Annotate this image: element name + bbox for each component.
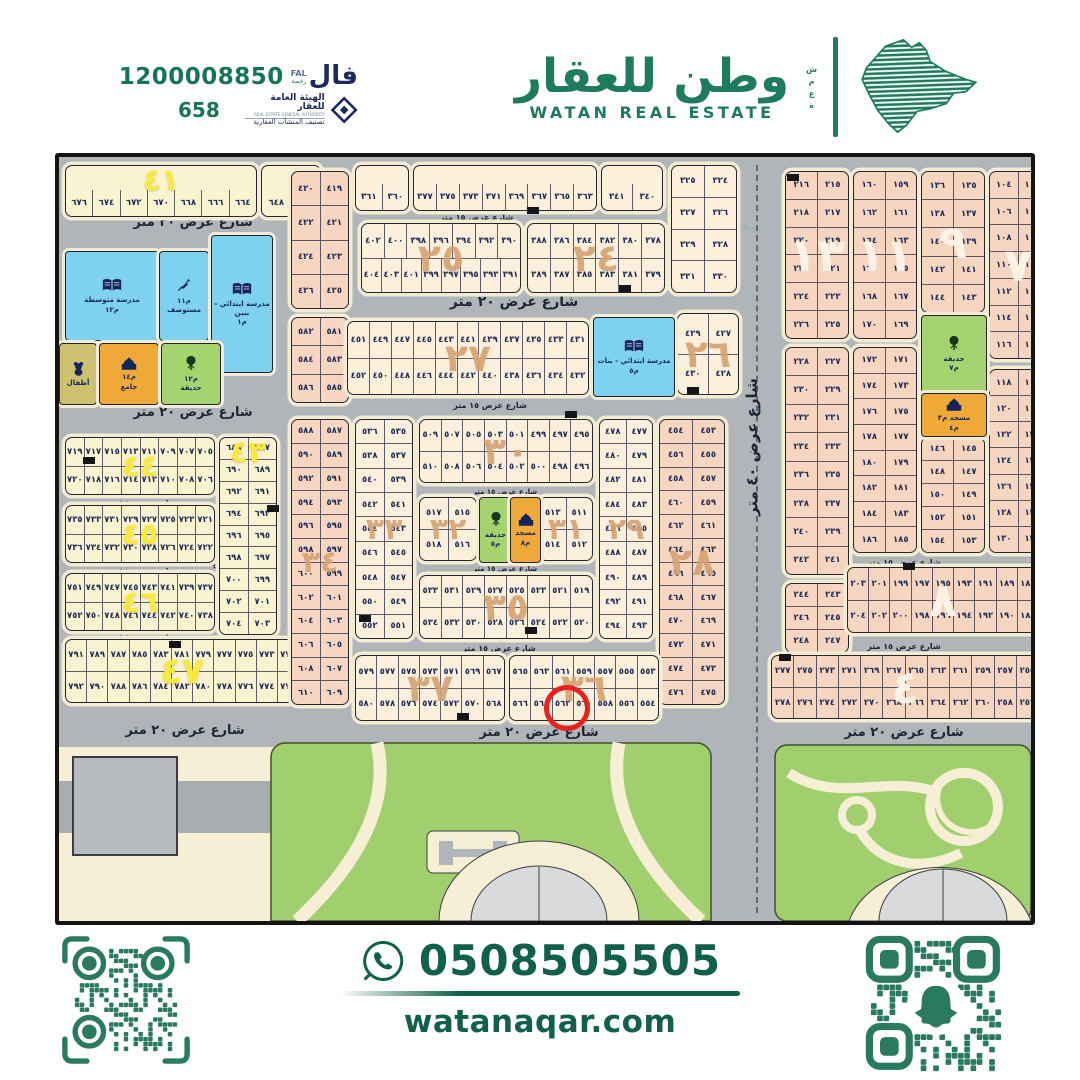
sold-marker — [565, 411, 577, 418]
plot-586: ٥٨٦ — [292, 375, 320, 402]
brand-side-letter: ش — [806, 65, 817, 74]
plot-477: ٤٧٧ — [626, 420, 653, 443]
plot-530: ٥٣٠ — [462, 608, 484, 639]
plot-163: ١٦٣ — [885, 228, 917, 255]
plot-378: ٣٧٨ — [641, 224, 664, 258]
fal-arabic-wordmark: فال — [309, 65, 358, 88]
plot-114: ١١٤ — [990, 306, 1018, 332]
mosque-icon — [120, 357, 138, 372]
plot-492: ٤٩٢ — [600, 590, 626, 613]
block-43: ٦٨٨٦٨٧٦٩٠٦٨٩٦٩٢٦٩١٦٩٤٦٩٣٦٩٦٦٩٥٦٩٨٦٩٧٧٠٠٦… — [219, 437, 277, 635]
fal-license-number: 1200008850 — [119, 64, 284, 90]
plot-173: ١٧٣ — [885, 374, 917, 399]
plot-528: ٥٢٨ — [484, 608, 506, 639]
plot-720: ٧٢٠ — [66, 467, 84, 495]
street-label: شارع عرض ١٥ متر — [355, 398, 625, 412]
plot-122: ١٢٢ — [990, 422, 1018, 447]
plot-699: ٦٩٩ — [248, 569, 277, 590]
street-label: شارع عرض ٢٠ متر — [771, 725, 1035, 739]
plot-565: ٥٦٥ — [510, 656, 530, 688]
plot-488: ٤٨٨ — [600, 542, 626, 565]
plot-154: ١٥٤ — [922, 530, 953, 552]
plot-221: ٢٢١ — [817, 255, 849, 282]
plot-476: ٤٧٦ — [660, 681, 692, 704]
plot-542: ٥٤٢ — [356, 493, 384, 516]
plot-227: ٢٢٧ — [817, 348, 849, 375]
plot-120: ١٢٠ — [990, 396, 1018, 421]
plot-578: ٥٧٨ — [376, 689, 397, 721]
plot-497: ٤٩٧ — [549, 420, 571, 451]
plot-500: ٥٠٠ — [527, 452, 549, 483]
plot-471: ٤٧١ — [692, 634, 725, 657]
plot-534: ٥٣٤ — [420, 608, 441, 639]
street-label: شارع عرض ١٥ متر — [419, 562, 591, 576]
plot-232: ٢٣٢ — [786, 405, 817, 432]
plot-170: ١٧٠ — [854, 311, 885, 338]
plot-589: ٥٨٩ — [320, 444, 349, 467]
plot-401: ٤٠١ — [401, 259, 421, 293]
school: مدرسة متوسطةم١٣ — [65, 251, 159, 341]
website-url[interactable]: watanaqar.com — [330, 1004, 750, 1040]
plot-592: ٥٩٢ — [292, 468, 320, 491]
plot-563: ٥٦٣ — [530, 656, 551, 688]
plot-523: ٥٢٣ — [527, 576, 549, 607]
plot-327: ٣٢٧ — [672, 198, 704, 229]
tree-icon — [184, 355, 198, 373]
plot-107: ١٠٧ — [1018, 225, 1036, 251]
plot-393: ٣٩٣ — [480, 259, 500, 293]
plot-369: ٣٦٩ — [505, 184, 528, 210]
plot-700: ٧٠٠ — [220, 569, 248, 590]
plot-237: ٢٣٧ — [817, 490, 849, 517]
plot-598: ٥٩٨ — [292, 539, 320, 562]
plot-495: ٤٩٥ — [570, 420, 592, 451]
sold-marker — [903, 563, 915, 570]
plot-271: ٢٧١ — [838, 656, 860, 687]
block: ٣٦١٣٦٠ — [355, 165, 409, 211]
plot-501: ٥٠١ — [506, 420, 528, 451]
block-29: ٤٧٨٤٧٧٤٨٠٤٧٩٤٨٢٤٨١٤٨٤٤٨٣٤٨٦٤٨٥٤٨٨٤٨٧٤٩٠٤… — [599, 419, 653, 639]
plot-783: ٧٨٣ — [150, 640, 171, 671]
sold-marker — [619, 285, 631, 292]
plot-258: ٢٥٨ — [994, 688, 1016, 719]
plot-382: ٣٨٢ — [595, 224, 618, 258]
plot-697: ٦٩٧ — [248, 547, 277, 568]
plot-566: ٥٦٦ — [510, 689, 530, 721]
facility-label: م٥ — [629, 367, 638, 375]
whatsapp-icon — [359, 937, 407, 985]
plot-556: ٥٥٦ — [615, 689, 636, 721]
plot-109: ١٠٩ — [1018, 252, 1036, 278]
street-label: شارع عرض ١٥ متر — [359, 641, 639, 655]
highlighted-plot-562[interactable] — [544, 685, 590, 731]
plot-129: ١٢٩ — [1018, 527, 1036, 552]
block-11: ١٦٠١٥٩١٦٢١٦١١٦٤١٦٣١٦٦١٦٥١٦٨١٦٧١٧٠١٦٩١١ — [853, 171, 917, 339]
plot-512: ٥١٢ — [566, 530, 593, 561]
bear-icon — [72, 361, 85, 378]
plot-147: ١٤٧ — [953, 461, 985, 483]
rega-name-ar: الهيئة العامة للعقار — [245, 94, 325, 113]
plot-433: ٤٣٣ — [544, 322, 566, 358]
plot-482: ٤٨٢ — [600, 469, 626, 492]
plot-597: ٥٩٧ — [320, 539, 349, 562]
plot-444: ٤٤٤ — [435, 359, 457, 395]
qr-code-snapchat[interactable] — [852, 922, 1020, 1080]
facility-label: مدرسة ابتدائي - بنين — [213, 300, 271, 317]
plot-714: ٧١٤ — [121, 467, 140, 495]
plot-236: ٢٣٦ — [786, 462, 817, 489]
plot-554: ٥٥٤ — [637, 689, 658, 721]
plot-558: ٥٥٨ — [594, 689, 615, 721]
plot-568: ٥٦٨ — [483, 689, 504, 721]
plot-160: ١٦٠ — [854, 172, 885, 199]
plot-235: ٢٣٥ — [817, 462, 849, 489]
plot-371: ٣٧١ — [482, 184, 505, 210]
plot-190: ١٩٠ — [996, 601, 1017, 633]
plot-437: ٤٣٧ — [500, 322, 522, 358]
plot-544: ٥٤٤ — [356, 517, 384, 540]
plot-779: ٧٧٩ — [192, 640, 213, 671]
plot-474: ٤٧٤ — [660, 658, 692, 681]
plot-536: ٥٣٦ — [356, 420, 384, 443]
plot-375: ٣٧٥ — [436, 184, 459, 210]
tree-icon — [489, 511, 503, 529]
plot-215: ٢١٥ — [817, 172, 849, 199]
plot-373: ٣٧٣ — [459, 184, 482, 210]
book-icon — [231, 282, 253, 299]
plot-569: ٥٦٩ — [461, 656, 482, 688]
plot-590: ٥٩٠ — [292, 444, 320, 467]
plot-674: ٦٧٤ — [92, 190, 119, 216]
plot-187: ١٨٧ — [1017, 568, 1035, 600]
plot-748: ٧٤٨ — [102, 603, 121, 631]
plot-571: ٥٧١ — [440, 656, 461, 688]
plot-746: ٧٤٦ — [121, 603, 140, 631]
plot-242: ٢٤٢ — [786, 547, 817, 574]
plot-451: ٤٥١ — [348, 322, 369, 358]
plot-594: ٥٩٤ — [292, 491, 320, 514]
plot-453: ٤٥٣ — [692, 420, 725, 443]
plot-713: ٧١٣ — [121, 438, 140, 466]
block: ٤٢٠٤١٩٤٢٢٤٢١٤٢٤٤٢٣٤٢٦٤٢٥ — [291, 171, 349, 309]
plot-185: ١٨٥ — [885, 527, 917, 552]
plot-790: ٧٩٠ — [86, 672, 107, 703]
plot-533: ٥٣٣ — [420, 576, 441, 607]
plot-385: ٣٨٥ — [573, 259, 596, 293]
plot-113: ١١٣ — [1018, 306, 1036, 332]
plot-466: ٤٦٦ — [660, 563, 692, 586]
street-label: شارع عرض ٢٠ متر — [349, 295, 679, 309]
plot-502: ٥٠٢ — [506, 452, 528, 483]
plot-220: ٢٢٠ — [786, 228, 817, 255]
plot-582: ٥٨٢ — [292, 318, 320, 345]
plot-733: ٧٣٣ — [84, 506, 103, 534]
sold-marker — [525, 627, 537, 634]
plot-734: ٧٣٤ — [84, 535, 103, 563]
plot-593: ٥٩٣ — [320, 491, 349, 514]
plot-423: ٤٢٣ — [320, 241, 349, 274]
plot-108: ١٠٨ — [990, 225, 1018, 251]
plot-788: ٧٨٨ — [107, 672, 128, 703]
block-41: ٦٧٦٦٧٤٦٧٢٦٧٠٦٦٨٦٦٦٦٦٤٤١ — [65, 165, 257, 217]
plot-721: ٧٢١ — [195, 506, 214, 534]
plot-241: ٢٤١ — [817, 547, 849, 574]
plot-648: ٦٤٨ — [262, 190, 291, 216]
plot-546: ٥٤٦ — [356, 542, 384, 565]
plot-550: ٥٥٠ — [356, 590, 384, 613]
plot-718: ٧١٨ — [84, 467, 103, 495]
brand-side-letter: ة — [809, 101, 814, 110]
facility-label: مستوصف — [167, 306, 201, 314]
plot-773: ٧٧٣ — [256, 640, 277, 671]
plot-520: ٥٢٠ — [570, 608, 592, 639]
plot-380: ٣٨٠ — [618, 224, 641, 258]
plot-341: ٣٤١ — [602, 184, 632, 210]
tree-icon — [947, 335, 961, 353]
plot-266: ٢٦٦ — [905, 688, 927, 719]
plot-517: ٥١٧ — [420, 498, 448, 529]
plot-202: ٢٠٢ — [868, 601, 889, 633]
plot-398: ٣٩٨ — [406, 224, 429, 258]
plot-184: ١٨٤ — [854, 502, 885, 527]
plot-487: ٤٨٧ — [626, 542, 653, 565]
plot-583: ٥٨٣ — [320, 346, 349, 373]
plot-539: ٥٣٩ — [384, 469, 413, 492]
plot-695: ٦٩٥ — [248, 526, 277, 547]
plot-496: ٤٩٦ — [570, 452, 592, 483]
plot-464: ٤٦٤ — [660, 539, 692, 562]
plot-128: ١٢٨ — [990, 501, 1018, 526]
facility-label: م٨ — [521, 539, 530, 547]
plot-225: ٢٢٥ — [817, 311, 849, 338]
plot-601: ٦٠١ — [320, 586, 349, 609]
block-25: ٤٠٢٤٠٠٣٩٨٣٩٦٣٩٤٣٩٢٣٩٠٤٠٤٤٠٣٤٠١٣٩٩٣٩٧٣٩٥٣… — [361, 223, 521, 293]
plot-729: ٧٢٩ — [121, 506, 140, 534]
plot-193: ١٩٣ — [953, 568, 974, 600]
plot-701: ٧٠١ — [248, 591, 277, 612]
plot-747: ٧٤٧ — [102, 574, 121, 602]
plot-226: ٢٢٦ — [786, 311, 817, 338]
plot-591: ٥٩١ — [320, 468, 349, 491]
saudi-map-icon — [845, 25, 999, 148]
plot-691: ٦٩١ — [248, 482, 277, 503]
plot-440: ٤٤٠ — [478, 359, 500, 395]
plot-112: ١١٢ — [990, 279, 1018, 305]
park: حديقةم٧ — [921, 315, 987, 393]
sold-marker — [687, 387, 699, 394]
mosque-icon — [517, 513, 535, 528]
plot-456: ٤٥٦ — [660, 444, 692, 467]
qr-code-website[interactable] — [60, 934, 192, 1066]
plot-180: ١٨٠ — [854, 451, 885, 476]
plot-169: ١٦٩ — [885, 311, 917, 338]
plot-111: ١١١ — [1018, 279, 1036, 305]
sold-marker — [787, 174, 799, 181]
plot-365: ٣٦٥ — [550, 184, 573, 210]
plot-257: ٢٥٧ — [994, 656, 1016, 687]
plot-138: ١٣٨ — [922, 200, 953, 227]
plot-143: ١٤٣ — [953, 285, 985, 312]
plot-473: ٤٧٣ — [692, 658, 725, 681]
kindergarten: أطفال — [59, 343, 97, 405]
plot-189: ١٨٩ — [996, 568, 1017, 600]
plot-483: ٤٨٣ — [626, 493, 653, 516]
plot-449: ٤٤٩ — [369, 322, 391, 358]
plot-153: ١٥٣ — [953, 530, 985, 552]
plot-110: ١١٠ — [990, 252, 1018, 278]
plot-265: ٢٦٥ — [905, 656, 927, 687]
sold-marker — [83, 457, 95, 464]
plot-574: ٥٧٤ — [419, 689, 440, 721]
plot-239: ٢٣٩ — [817, 518, 849, 545]
plot-689: ٦٨٩ — [248, 460, 277, 481]
block-46: ٧٥١٧٤٩٧٤٧٧٤٥٧٤٣٧٤١٧٣٩٧٣٧٧٥٢٧٥٠٧٤٨٧٤٦٧٤٤٧… — [65, 573, 215, 631]
plot-186: ١٨٦ — [854, 527, 885, 552]
facility-label: مدرسة متوسطة — [84, 296, 140, 304]
plot-694: ٦٩٤ — [220, 504, 248, 525]
street-label: شارع عرض ٢٠ متر — [359, 725, 719, 739]
plot-730: ٧٣٠ — [121, 535, 140, 563]
plot-522: ٥٢٢ — [549, 608, 571, 639]
mosque-icon — [945, 398, 963, 413]
plot-441: ٤٤١ — [457, 322, 479, 358]
plot-175: ١٧٥ — [885, 399, 917, 424]
mosque: م١٤جامع — [99, 343, 159, 405]
plot-469: ٤٦٩ — [692, 610, 725, 633]
plot-162: ١٦٢ — [854, 200, 885, 227]
plot-744: ٧٤٤ — [140, 603, 159, 631]
plot-117: ١١٧ — [1018, 370, 1036, 395]
block-45: ٧٣٥٧٣٣٧٣١٧٢٩٧٢٧٧٢٥٧٢٣٧٢١٧٣٦٧٣٤٧٣٢٧٣٠٧٢٨٧… — [65, 505, 215, 563]
facility-label: مسجد م٣ — [938, 414, 970, 422]
plot-599: ٥٩٩ — [320, 563, 349, 586]
plot-775: ٧٧٥ — [235, 640, 256, 671]
facility-label: م٧ — [949, 364, 958, 372]
plot-394: ٣٩٤ — [452, 224, 475, 258]
plot-166: ١٦٦ — [854, 255, 885, 282]
plot-429: ٤٢٩ — [678, 314, 708, 354]
plot-188: ١٨٨ — [1017, 601, 1035, 633]
plot-690: ٦٩٠ — [220, 460, 248, 481]
plot-722: ٧٢٢ — [195, 535, 214, 563]
plot-698: ٦٩٨ — [220, 547, 248, 568]
plot-478: ٤٧٨ — [600, 420, 626, 443]
plot-238: ٢٣٨ — [786, 490, 817, 517]
contact-phone[interactable]: 0508505505 — [419, 936, 721, 985]
book-icon — [623, 339, 645, 356]
facility-label: أطفال — [67, 379, 90, 387]
plot-443: ٤٤٣ — [435, 322, 457, 358]
plot-576: ٥٧٦ — [398, 689, 419, 721]
plot-115: ١١٥ — [1018, 332, 1036, 358]
plot-121: ١٢١ — [1018, 422, 1036, 447]
plot-610: ٦١٠ — [292, 681, 320, 704]
plot-274: ٢٧٤ — [816, 688, 838, 719]
plot-529: ٥٢٩ — [462, 576, 484, 607]
plot-387: ٣٨٧ — [550, 259, 573, 293]
plot-543: ٥٤٣ — [384, 517, 413, 540]
plot-776: ٧٧٦ — [235, 672, 256, 703]
plot-183: ١٨٣ — [885, 502, 917, 527]
plot-749: ٧٤٩ — [84, 574, 103, 602]
plot-243: ٢٤٣ — [817, 584, 849, 606]
plot-171: ١٧١ — [885, 348, 917, 373]
plot-676: ٦٧٦ — [66, 190, 92, 216]
plot-422: ٤٢٢ — [292, 206, 320, 239]
facility-label: مسجد — [515, 529, 536, 537]
plot-513: ٥١٣ — [540, 498, 566, 529]
plot-555: ٥٥٥ — [615, 656, 636, 688]
block: ٣٧٧٣٧٥٣٧٣٣٧١٣٦٩٣٦٧٣٦٥٣٦٣ — [413, 165, 597, 211]
plot-703: ٧٠٣ — [248, 613, 277, 634]
plot-465: ٤٦٥ — [692, 563, 725, 586]
plot-587: ٥٨٧ — [320, 420, 349, 443]
plot-547: ٥٤٧ — [384, 566, 413, 589]
plot-735: ٧٣٥ — [66, 506, 84, 534]
plot-531: ٥٣١ — [441, 576, 463, 607]
plot-329: ٣٢٩ — [672, 230, 704, 261]
plot-738: ٧٣٨ — [195, 603, 214, 631]
plot-434: ٤٣٤ — [544, 359, 566, 395]
block-27: ٤٥١٤٤٩٤٤٧٤٤٥٤٤٣٤٤١٤٣٩٤٣٧٤٣٥٤٣٣٤٣١٤٥٢٤٥٠٤… — [347, 321, 589, 395]
plot-139: ١٣٩ — [953, 228, 985, 255]
plot-462: ٤٦٢ — [660, 515, 692, 538]
plot-168: ١٦٨ — [854, 283, 885, 310]
plot-119: ١١٩ — [1018, 396, 1036, 421]
park: حديقةم٥ — [479, 497, 512, 563]
fal-tag: رخصة — [291, 78, 307, 85]
plot-146: ١٤٦ — [922, 438, 953, 460]
plot-199: ١٩٩ — [889, 568, 910, 600]
plot-585: ٥٨٥ — [320, 375, 349, 402]
plot-709: ٧٠٩ — [158, 438, 177, 466]
facility-label: م١٢ — [184, 375, 198, 383]
plot-540: ٥٤٠ — [356, 469, 384, 492]
plot-377: ٣٧٧ — [414, 184, 436, 210]
rega-diamond-icon — [330, 95, 358, 125]
plot-262: ٢٦٢ — [949, 688, 971, 719]
plot-708: ٧٠٨ — [177, 467, 196, 495]
plot-712: ٧١٢ — [140, 467, 159, 495]
plot-480: ٤٨٠ — [600, 444, 626, 467]
plot-784: ٧٨٤ — [150, 672, 171, 703]
plot-446: ٤٤٦ — [413, 359, 435, 395]
plot-231: ٢٣١ — [817, 405, 849, 432]
plot-751: ٧٥١ — [66, 574, 84, 602]
block-26: ٤٢٩٤٢٧٤٣٠٤٢٨٢٦ — [677, 313, 739, 395]
plot-384: ٣٨٤ — [573, 224, 596, 258]
plot-106: ١٠٦ — [990, 199, 1018, 225]
plot-605: ٦٠٥ — [320, 634, 349, 657]
plot-260: ٢٦٠ — [971, 688, 993, 719]
plot-330: ٣٣٠ — [704, 261, 737, 292]
brand-logo: وطن للعقار WATAN REAL ESTATE شمعة — [515, 28, 997, 146]
plot-272: ٢٧٢ — [838, 688, 860, 719]
block-32: ٥١٧٥١٥٥١٨٥١٦٣٢ — [419, 497, 477, 561]
plot-104: ١٠٤ — [990, 172, 1018, 198]
plot-123: ١٢٣ — [1018, 448, 1036, 473]
plot-268: ٢٦٨ — [882, 688, 904, 719]
plot-105: ١٠٥ — [1018, 199, 1036, 225]
block: ٢٤٤٢٤٣٢٤٦٢٤٥٢٤٨٢٤٧ — [785, 583, 849, 653]
facility-label: م١ — [237, 318, 246, 326]
footer: 0508505505 watanaqar.com — [0, 928, 1080, 1080]
plot-195: ١٩٥ — [932, 568, 953, 600]
book-icon — [101, 278, 123, 295]
plot-436: ٤٣٦ — [522, 359, 544, 395]
plot-145: ١٤٥ — [953, 438, 985, 460]
plot-196: ١٩٦ — [932, 601, 953, 633]
